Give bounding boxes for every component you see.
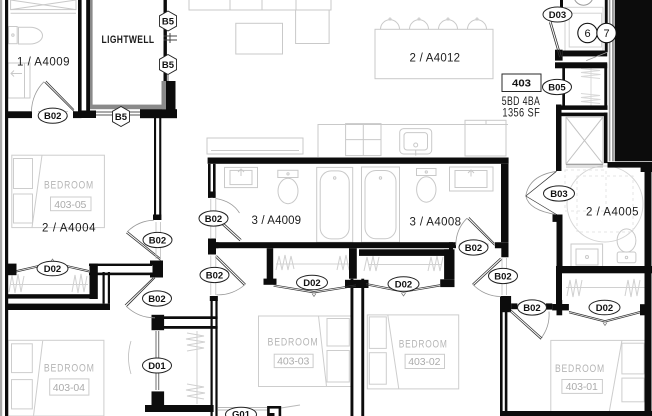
svg-text:403-04: 403-04 [53,382,86,394]
svg-text:B5: B5 [162,17,175,28]
svg-text:LIGHTWELL: LIGHTWELL [102,34,155,46]
svg-text:7: 7 [603,28,609,40]
svg-text:D02: D02 [44,264,61,275]
svg-text:1356 SF: 1356 SF [502,108,540,120]
svg-text:403-02: 403-02 [408,356,441,368]
svg-text:3 / A4009: 3 / A4009 [252,215,302,227]
svg-text:403-01: 403-01 [566,381,599,393]
svg-text:B03: B03 [550,189,567,200]
svg-text:3 / A4008: 3 / A4008 [410,217,462,229]
svg-text:B02: B02 [206,271,223,282]
svg-text:B5: B5 [115,112,128,123]
svg-text:B02: B02 [494,272,511,283]
svg-text:G01: G01 [232,410,251,416]
svg-text:B02: B02 [465,243,482,254]
svg-text:B02: B02 [149,236,166,247]
svg-text:1 / A4009: 1 / A4009 [17,56,70,68]
svg-text:BEDROOM: BEDROOM [399,339,448,351]
svg-text:BEDROOM: BEDROOM [44,363,95,375]
svg-text:403: 403 [512,78,531,90]
svg-text:BEDROOM: BEDROOM [555,363,605,375]
svg-text:BEDROOM: BEDROOM [44,179,94,191]
svg-text:6: 6 [584,28,590,40]
svg-text:D02: D02 [303,278,320,289]
svg-text:B02: B02 [44,111,61,122]
svg-text:BEDROOM: BEDROOM [268,337,319,349]
svg-text:2 / A4012: 2 / A4012 [410,53,461,65]
svg-text:5BD 4BA: 5BD 4BA [502,96,541,108]
svg-text:403-03: 403-03 [277,356,310,368]
svg-text:D02: D02 [395,280,412,291]
svg-text:D01: D01 [148,361,166,372]
svg-text:403-05: 403-05 [54,199,87,211]
svg-text:2 / A4005: 2 / A4005 [586,207,639,219]
svg-text:B02: B02 [205,214,222,225]
svg-text:2 / A4004: 2 / A4004 [42,223,96,235]
svg-text:B05: B05 [548,83,566,94]
svg-text:D02: D02 [596,303,613,314]
svg-text:B02: B02 [523,303,540,314]
svg-text:B5: B5 [162,60,175,71]
svg-text:B02: B02 [148,294,165,305]
svg-text:D03: D03 [549,10,566,21]
